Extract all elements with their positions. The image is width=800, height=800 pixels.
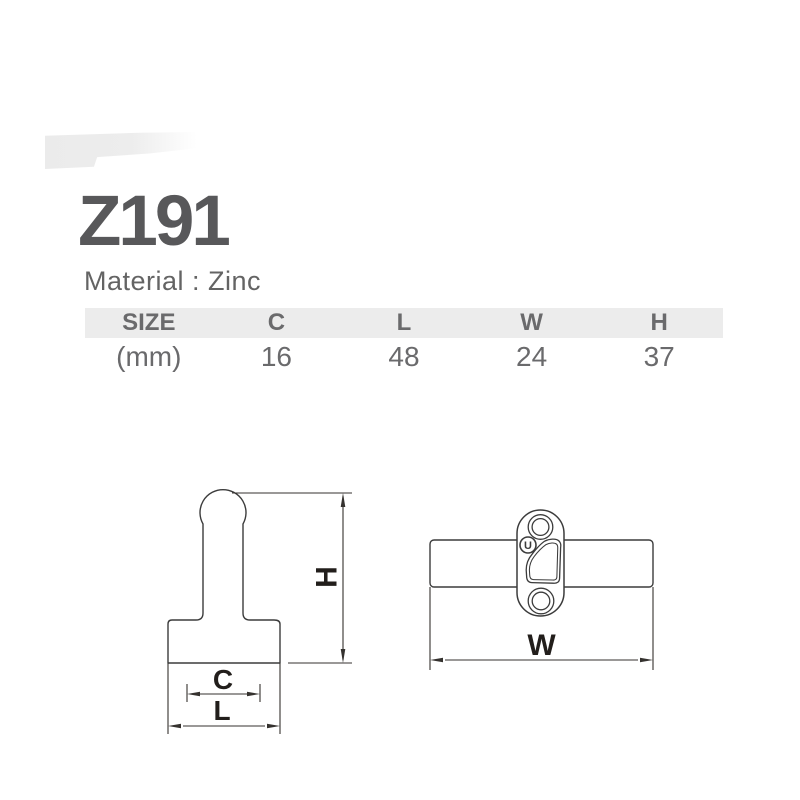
arrowhead	[341, 649, 346, 663]
arrowhead	[640, 658, 653, 663]
arrowhead	[341, 493, 346, 507]
size-table-unit: (mm)	[85, 343, 213, 371]
size-table-value-h: 37	[595, 343, 723, 371]
page-title: Z191	[78, 186, 228, 257]
arrowhead	[187, 692, 200, 697]
size-table-header-size: SIZE	[85, 311, 213, 335]
arrowhead	[430, 658, 443, 663]
size-table: SIZE C L W H (mm) 16 48 24 37	[85, 308, 723, 375]
size-table-header-h: H	[595, 311, 723, 335]
size-table-value-row: (mm) 16 48 24 37	[85, 338, 723, 375]
material-label: Material : Zinc	[84, 266, 261, 297]
size-table-header-w: W	[468, 311, 596, 335]
set-screw-marking: U	[524, 540, 532, 552]
size-table-header-l: L	[340, 311, 468, 335]
scan-smudge	[45, 132, 203, 169]
front-view-drawing: U W	[410, 495, 670, 680]
size-table-value-c: 16	[213, 343, 341, 371]
side-view-drawing: H C L	[150, 480, 365, 750]
dim-label-h: H	[311, 566, 344, 588]
arrowhead	[168, 724, 181, 729]
size-table-value-l: 48	[340, 343, 468, 371]
size-table-header-c: C	[213, 311, 341, 335]
size-table-header-row: SIZE C L W H	[85, 308, 723, 338]
dim-label-w: W	[527, 629, 556, 662]
dim-label-c: C	[213, 664, 233, 695]
knob-outline	[168, 490, 280, 663]
arrowhead	[267, 724, 280, 729]
size-table-value-w: 24	[468, 343, 596, 371]
dim-label-l: L	[213, 695, 230, 726]
arrowhead	[247, 692, 260, 697]
